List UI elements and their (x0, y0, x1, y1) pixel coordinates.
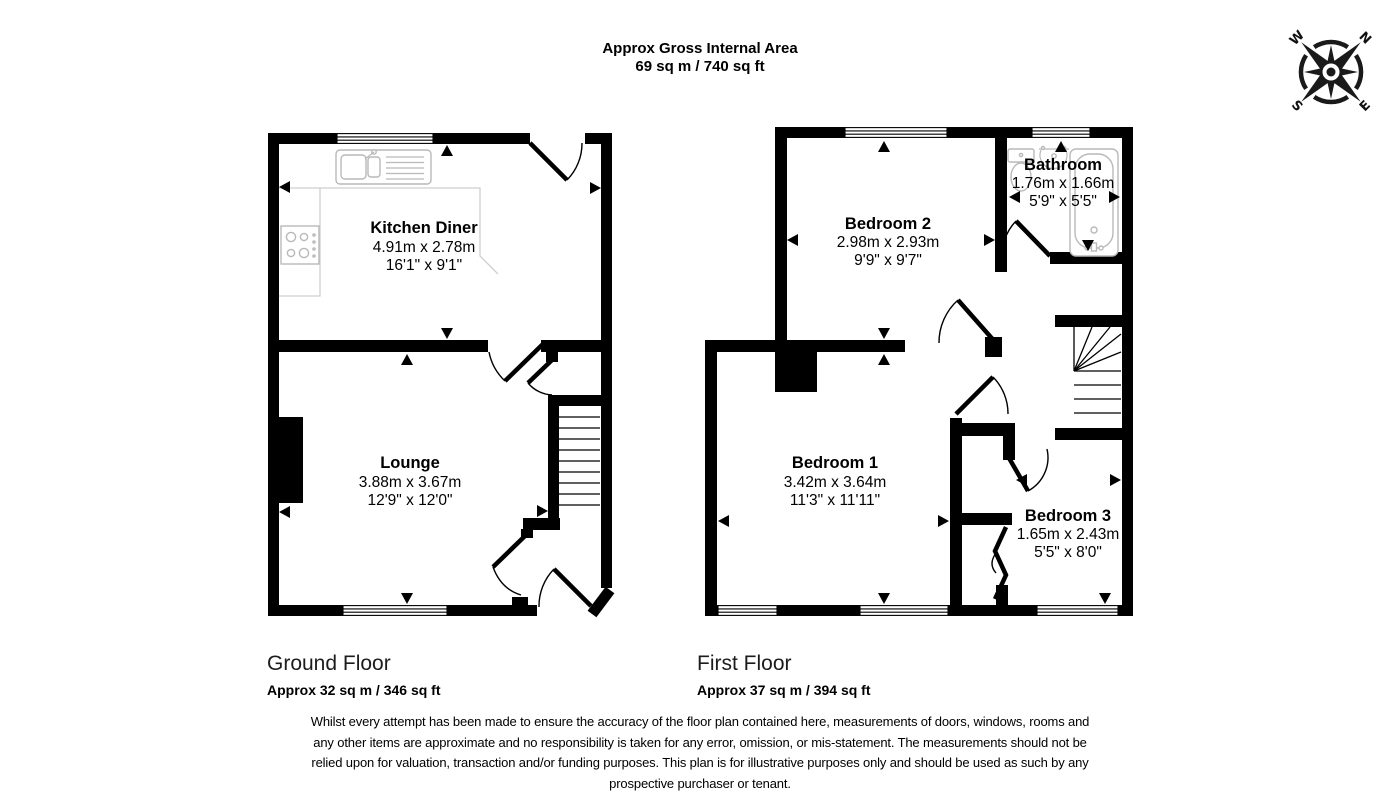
chimney-breast (268, 417, 303, 503)
lounge-hall-door (493, 534, 527, 595)
room-metric: 3.88m x 3.67m (359, 474, 462, 491)
arrow-right-icon (938, 515, 949, 527)
floor-name: Ground Floor (267, 652, 441, 676)
ground-floor-doors (489, 143, 591, 607)
room-metric: 1.65m x 2.43m (1017, 526, 1120, 543)
arrow-up-icon (441, 145, 453, 156)
room-imperial: 5'9" x 5'5" (1029, 193, 1097, 210)
bedroom3-window (1037, 606, 1118, 616)
arrow-down-icon (878, 328, 890, 339)
compass-hub-dot (1327, 68, 1336, 77)
arrow-right-icon (537, 505, 548, 517)
room-metric: 1.76m x 1.66m (1012, 175, 1115, 192)
floorplan-page: Approx Gross Internal Area 69 sq m / 740… (0, 0, 1400, 800)
arrow-right-icon (1110, 474, 1121, 486)
bedroom2-window (845, 128, 947, 138)
floor-name: First Floor (697, 652, 871, 676)
bedroom1-window-right (860, 606, 948, 616)
kitchen-window (337, 134, 433, 144)
room-name: Kitchen Diner (370, 219, 478, 237)
room-name: Bedroom 2 (845, 215, 931, 233)
bedroom1-label: Bedroom 1 3.42m x 3.64m 11'3" x 11'11" (784, 454, 887, 509)
arrow-left-icon (1009, 191, 1020, 203)
room-metric: 4.91m x 2.78m (373, 239, 476, 256)
ground-floor-plan: Kitchen Diner 4.91m x 2.78m 16'1" x 9'1"… (268, 133, 612, 616)
compass-rose-icon: N E S W (1287, 28, 1374, 115)
floor-area: Approx 32 sq m / 346 sq ft (267, 682, 441, 698)
room-name: Bedroom 1 (792, 454, 878, 472)
room-imperial: 5'5" x 8'0" (1034, 544, 1102, 561)
front-corner-wall (592, 590, 610, 614)
ground-floor-windows (337, 134, 447, 616)
room-imperial: 9'9" x 9'7" (854, 252, 922, 269)
arrow-right-icon (984, 234, 995, 246)
arrow-down-icon (441, 328, 453, 339)
hob-icon (281, 226, 319, 264)
front-door (539, 569, 591, 607)
arrow-up-icon (401, 354, 413, 365)
ground-floor-caption: Ground Floor Approx 32 sq m / 346 sq ft (267, 652, 441, 698)
lounge-label: Lounge 3.88m x 3.67m 12'9" x 12'0" (359, 454, 462, 509)
floor-area: Approx 37 sq m / 394 sq ft (697, 682, 871, 698)
arrow-left-icon (787, 234, 798, 246)
disclaimer-text: Whilst every attempt has been made to en… (0, 712, 1400, 794)
hall-door (528, 360, 552, 395)
arrow-down-icon (401, 593, 413, 604)
staircase-first (1074, 327, 1121, 413)
arrow-down-icon (1099, 593, 1111, 604)
room-imperial: 16'1" x 9'1" (386, 257, 462, 274)
room-imperial: 12'9" x 12'0" (367, 492, 452, 509)
bathroom-door (1002, 221, 1050, 262)
bedroom2-label: Bedroom 2 2.98m x 2.93m 9'9" x 9'7" (837, 215, 940, 269)
arrow-up-icon (878, 354, 890, 365)
bedroom2-door (939, 300, 996, 343)
first-floor-caption: First Floor Approx 37 sq m / 394 sq ft (697, 652, 871, 698)
first-floor-plan: Bedroom 2 2.98m x 2.93m 9'9" x 9'7" Bath… (705, 127, 1133, 616)
staircase-ground (559, 417, 600, 505)
chimney-breast (775, 340, 817, 392)
disclaimer-line4: prospective purchaser or tenant. (0, 774, 1400, 795)
disclaimer-line3: relied upon for valuation, transaction a… (0, 753, 1400, 774)
arrow-right-icon (590, 182, 601, 194)
kitchen-diner-label: Kitchen Diner 4.91m x 2.78m 16'1" x 9'1" (370, 219, 478, 274)
disclaimer-line1: Whilst every attempt has been made to en… (0, 712, 1400, 733)
disclaimer-line2: any other items are approximate and no r… (0, 733, 1400, 754)
room-name: Bedroom 3 (1025, 507, 1111, 525)
room-name: Bathroom (1024, 156, 1102, 174)
kitchen-back-door (530, 143, 582, 180)
bedroom3-label: Bedroom 3 1.65m x 2.43m 5'5" x 8'0" (1017, 507, 1120, 561)
arrow-left-icon (279, 181, 290, 193)
room-imperial: 11'3" x 11'11" (790, 492, 880, 509)
sink-icon (336, 150, 431, 184)
arrow-left-icon (279, 506, 290, 518)
arrow-down-icon (878, 593, 890, 604)
bedroom1-window-left (718, 606, 777, 616)
room-metric: 3.42m x 3.64m (784, 474, 887, 491)
ground-floor-dimension-arrows (279, 145, 601, 604)
compass-e: E (1357, 98, 1374, 115)
lounge-window (343, 606, 447, 616)
arrow-left-icon (718, 515, 729, 527)
room-name: Lounge (380, 454, 440, 472)
bedroom1-door (956, 377, 1008, 414)
room-metric: 2.98m x 2.93m (837, 234, 940, 251)
bathroom-window (1032, 128, 1090, 138)
arrow-up-icon (878, 141, 890, 152)
